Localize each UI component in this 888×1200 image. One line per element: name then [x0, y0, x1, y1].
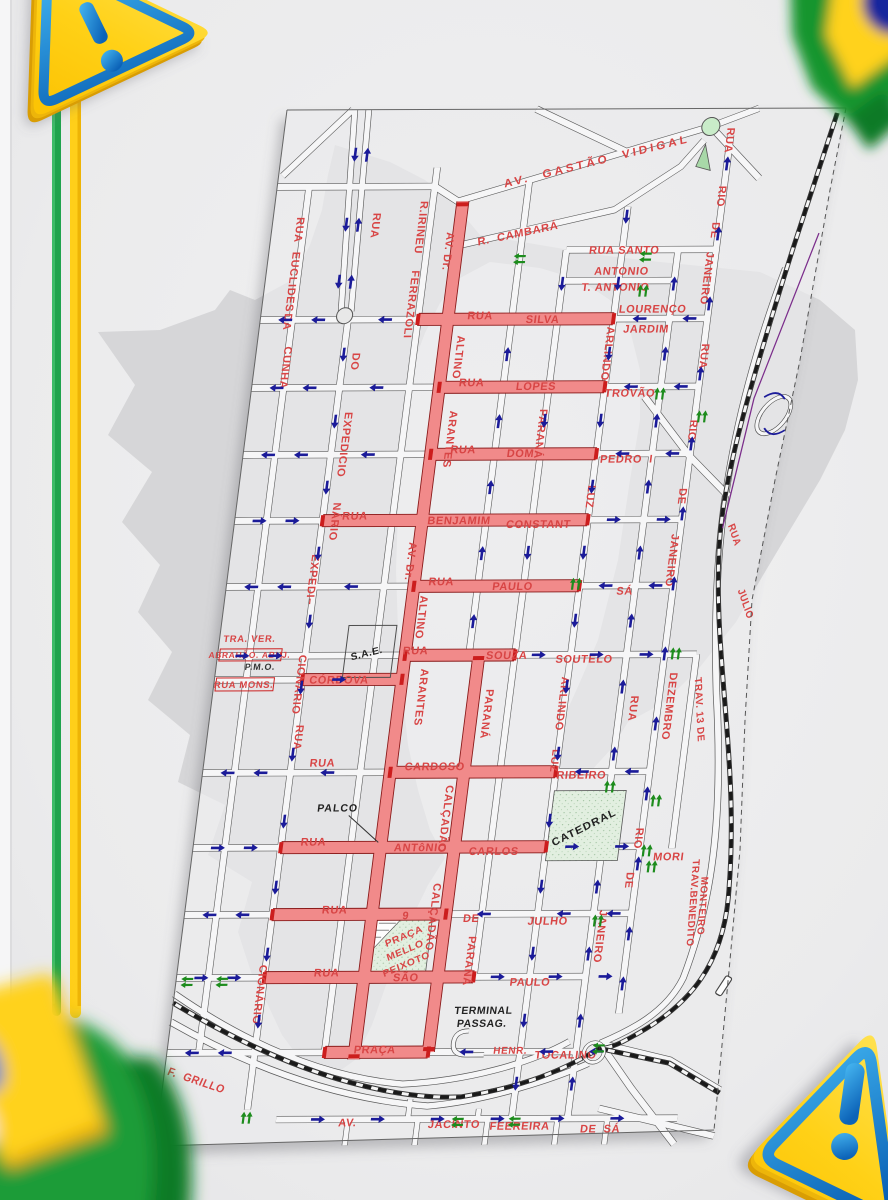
svg-text:TRA. VER.: TRA. VER.	[223, 634, 277, 645]
svg-text:SÁ: SÁ	[616, 585, 634, 598]
svg-text:P.M.O.: P.M.O.	[244, 662, 276, 672]
svg-text:PALCO: PALCO	[316, 802, 358, 814]
svg-text:RUA: RUA	[313, 967, 340, 979]
svg-text:FEEREIRA: FEEREIRA	[489, 1121, 551, 1133]
svg-text:TROVÃO: TROVÃO	[604, 387, 656, 400]
svg-text:CONSTANT: CONSTANT	[505, 519, 571, 531]
svg-text:PAULO: PAULO	[509, 977, 551, 989]
svg-text:DO: DO	[348, 353, 362, 371]
svg-text:MORI: MORI	[652, 851, 685, 863]
svg-text:RUA: RUA	[300, 837, 327, 849]
svg-text:TERMINAL: TERMINAL	[454, 1005, 514, 1017]
svg-text:ANTONIO: ANTONIO	[593, 266, 649, 278]
svg-text:RUA: RUA	[428, 576, 455, 588]
svg-text:LOPES: LOPES	[515, 381, 557, 393]
svg-text:RUA: RUA	[467, 310, 494, 322]
svg-text:BENJAMIM: BENJAMIM	[427, 515, 492, 527]
svg-text:RUA MONS.: RUA MONS.	[213, 680, 274, 691]
svg-text:JARDIM: JARDIM	[622, 324, 669, 336]
svg-text:CARLOS: CARLOS	[468, 846, 519, 858]
svg-text:PEDRO I: PEDRO I	[599, 454, 653, 466]
svg-text:RUA: RUA	[341, 511, 368, 523]
svg-text:JULHO: JULHO	[527, 916, 569, 928]
svg-text:LOURENÇO: LOURENÇO	[618, 303, 687, 315]
svg-text:SOUTELO: SOUTELO	[555, 654, 614, 666]
svg-text:RUA SANTO: RUA SANTO	[588, 245, 660, 257]
svg-text:DE: DE	[675, 488, 689, 505]
svg-text:AV.: AV.	[338, 1117, 358, 1129]
svg-text:CARDOSO: CARDOSO	[404, 761, 466, 773]
svg-text:PAULO: PAULO	[491, 581, 533, 593]
svg-text:RUA: RUA	[309, 758, 336, 770]
svg-text:PRAÇA: PRAÇA	[353, 1044, 396, 1056]
svg-text:DOM: DOM	[506, 448, 535, 460]
svg-text:PASSAG.: PASSAG.	[456, 1018, 507, 1030]
svg-text:SOUZA: SOUZA	[485, 650, 528, 662]
svg-text:RUA: RUA	[402, 645, 429, 657]
svg-text:DE: DE	[622, 872, 636, 889]
svg-text:HENR.: HENR.	[493, 1046, 528, 1057]
svg-text:SILVA: SILVA	[525, 314, 560, 326]
svg-text:DE: DE	[462, 913, 480, 925]
svg-text:RUA: RUA	[321, 904, 348, 916]
